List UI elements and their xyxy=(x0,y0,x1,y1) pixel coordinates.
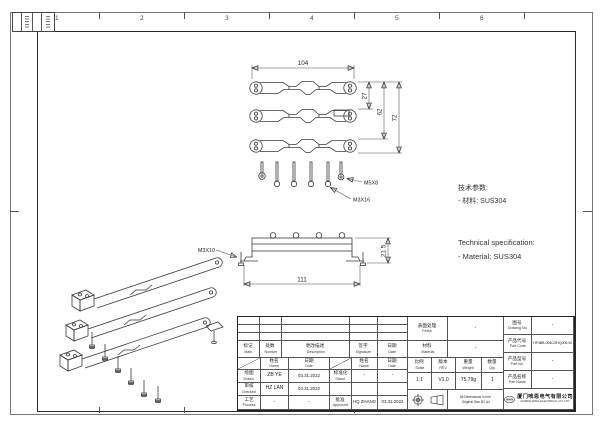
drawing-no-value: - xyxy=(532,317,574,335)
sig-process-date: - xyxy=(289,396,330,410)
iso-block xyxy=(72,290,94,311)
part-no-value: - xyxy=(532,353,574,371)
qty-value: 1 xyxy=(482,373,504,390)
sig-empty-cell xyxy=(330,383,352,396)
rev-empty-cell xyxy=(260,325,282,333)
revision-signature-table: 标记Mark 处数Number 更改描述Description 签字Signat… xyxy=(238,317,408,410)
rev-empty-cell xyxy=(260,333,282,341)
front-view: M3X10 111 21.5 xyxy=(198,233,391,286)
rev-header-date: 日期Date xyxy=(378,341,408,358)
dim-top-mid: 62 xyxy=(377,108,384,116)
part-no-label: 产品型号Part No. xyxy=(504,353,532,371)
sig-subheader-name: 姓名Name xyxy=(261,358,289,370)
rev-empty-cell xyxy=(282,325,350,333)
dim-top-total: 72 xyxy=(392,114,399,122)
part-name-label: 产品名称Part Name xyxy=(504,371,532,389)
sig-stand-date: - xyxy=(378,370,408,383)
sig-drawn-date: 03.31.2022 xyxy=(289,370,330,383)
sig-label-approved: 批准Approved xyxy=(330,396,352,410)
material-value: - xyxy=(448,341,504,358)
technical-notes: 技术参数: - 材料: SUS304 Technical specificati… xyxy=(458,182,588,263)
iso-view xyxy=(60,258,223,403)
sig-process-name: - xyxy=(261,396,289,410)
sig-drawn-name: ZB YE xyxy=(261,370,289,383)
rev-label: 版本REV. xyxy=(432,358,456,373)
sig-checked-date: 03.31.2022 xyxy=(289,383,330,396)
company-cell: WAIN 厦门唯恩电气有限公司 XIAMEN WAIN ELECTRICAL C… xyxy=(504,389,574,410)
dim-front-width: 111 xyxy=(297,277,307,284)
rev-empty-cell xyxy=(238,333,260,341)
rev-empty-cell xyxy=(350,325,378,333)
screw-label-m3x10: M3X10 xyxy=(198,248,215,254)
sig-label-process: 工艺Process xyxy=(238,396,261,410)
screw-label-m5x8: M5X8 xyxy=(364,181,378,187)
finish-label: 表面处理Finish xyxy=(408,317,448,341)
rev-empty-cell xyxy=(238,317,260,325)
rev-value: V1.0 xyxy=(432,373,456,390)
rev-empty-cell xyxy=(378,317,408,325)
qty-label: 数量Qty. xyxy=(482,358,504,373)
rev-empty-cell xyxy=(378,325,408,333)
svg-text:WAIN: WAIN xyxy=(506,397,513,401)
dim-front-height: 21.5 xyxy=(381,244,388,257)
sig-empty-cell xyxy=(352,383,378,396)
sig-diag-cell xyxy=(330,358,352,370)
rev-header-mark: 标记Mark xyxy=(238,341,260,358)
scale-label: 比例Scale xyxy=(408,358,432,373)
screw-label-m3x16: M3X16 xyxy=(353,198,370,204)
spec-table: 表面处理Finish - 材料Material - 比例Scale 版本REV.… xyxy=(408,317,504,410)
projection-symbol-cell xyxy=(408,390,448,410)
rev-empty-cell xyxy=(260,317,282,325)
rev-header-number: 处数Number xyxy=(260,341,282,358)
part-info-table: 图号Drawing No. - 产品代号Part Code HF4BB-004C… xyxy=(504,317,574,410)
iso-block xyxy=(60,350,82,371)
sig-stand-name: - xyxy=(352,370,378,383)
rev-header-description: 更改描述Description xyxy=(282,341,350,358)
drawing-sheet: 1 2 3 4 5 6 xyxy=(0,0,600,424)
part-code-value: HF4BB-004C/2HQ005-W xyxy=(532,335,574,353)
notes-zh-material: - 材料: SUS304 xyxy=(458,195,588,208)
company-name-en: XIAMEN WAIN ELECTRICAL CO.,LTD xyxy=(520,400,569,403)
drawing-no-label: 图号Drawing No. xyxy=(504,317,532,335)
scale-value: 1:1 xyxy=(408,373,432,390)
screw-row: M5X8 M3X16 xyxy=(259,162,378,204)
weight-label: 重量Weight xyxy=(456,358,482,373)
rev-empty-cell xyxy=(378,333,408,341)
sig-label-drawn: 绘图Drawn xyxy=(238,370,261,383)
rev-empty-cell xyxy=(350,317,378,325)
notes-en-title: Technical specification: xyxy=(458,236,588,250)
sig-label-stand: 标准化Stand xyxy=(330,370,352,383)
sig-diag-cell xyxy=(238,358,261,370)
weight-value: 75.79g xyxy=(456,373,482,390)
sig-approved-date: 03.31.2022 xyxy=(378,396,408,410)
sig-checked-name: HZ LAN xyxy=(261,383,289,396)
rev-empty-cell xyxy=(350,333,378,341)
title-block: 标记Mark 处数Number 更改描述Description 签字Signat… xyxy=(237,316,575,411)
part-code-label: 产品代号Part Code xyxy=(504,335,532,353)
iso-block xyxy=(66,320,88,341)
material-label: 材料Material xyxy=(408,341,448,358)
rev-empty-cell xyxy=(282,317,350,325)
dim-top-gap: 27 xyxy=(362,92,369,100)
sig-subheader-date: 日期Date xyxy=(289,358,330,370)
rev-header-signature: 签字Signature xyxy=(350,341,378,358)
notes-en-material: - Material: SUS304 xyxy=(458,250,588,264)
sig-empty-cell xyxy=(378,383,408,396)
sig-subheader-name: 姓名Name xyxy=(352,358,378,370)
wain-logo: WAIN xyxy=(504,394,515,405)
sig-approved-name: HQ ZHANG xyxy=(352,396,378,410)
dimension-note-line1: All Dimensions in mm xyxy=(460,395,491,399)
rev-empty-cell xyxy=(238,325,260,333)
dim-top-width: 104 xyxy=(298,60,309,67)
top-view: 104 27 62 72 xyxy=(250,60,402,153)
rev-empty-cell xyxy=(282,333,350,341)
first-angle-projection-icon xyxy=(410,393,446,407)
part-name-value: - xyxy=(532,371,574,389)
finish-value: - xyxy=(448,317,504,341)
notes-zh-title: 技术参数: xyxy=(458,182,588,195)
sig-label-checked: 审核Checked xyxy=(238,383,261,396)
dimension-note-line2: Original Size BY A4 xyxy=(461,400,489,404)
dimension-note-cell: All Dimensions in mm Original Size BY A4 xyxy=(448,390,504,410)
sig-subheader-date: 日期Date xyxy=(378,358,408,370)
